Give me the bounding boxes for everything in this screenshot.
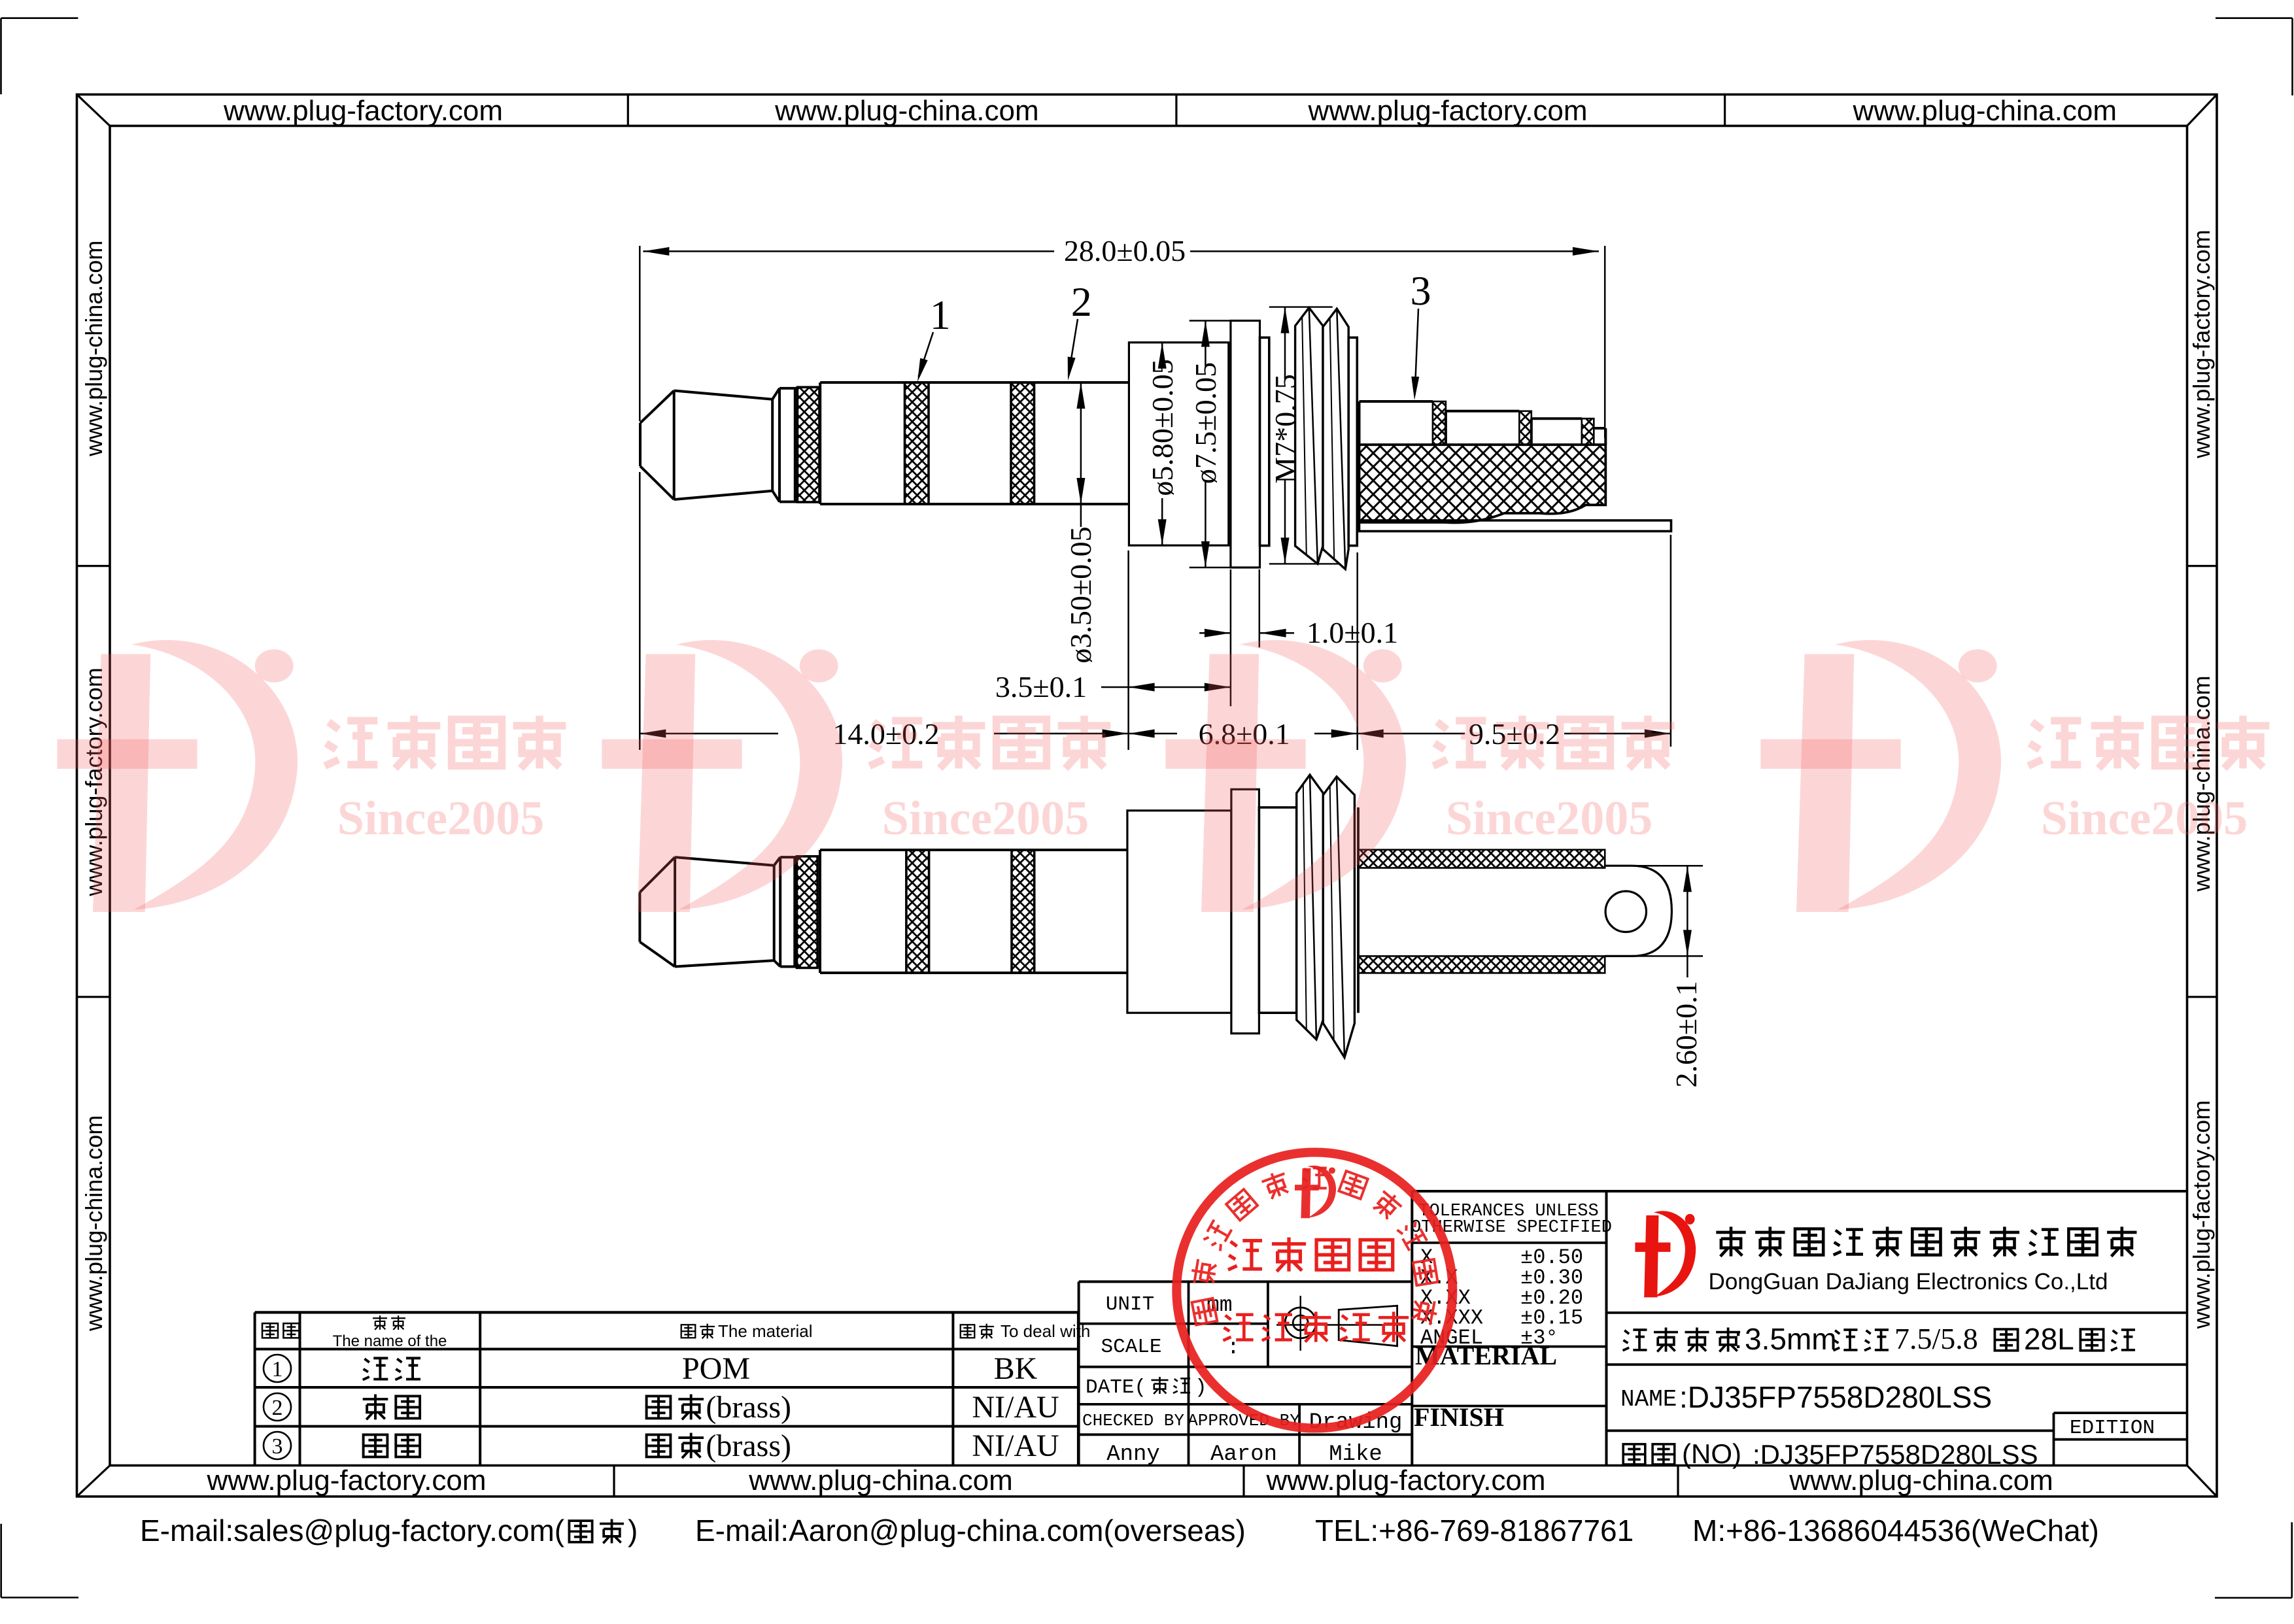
- svg-text:ø3.50±0.05: ø3.50±0.05: [1064, 526, 1097, 663]
- svg-text:www.plug-factory.com: www.plug-factory.com: [223, 95, 503, 127]
- svg-text:UNIT: UNIT: [1106, 1293, 1154, 1316]
- svg-text:1: 1: [930, 292, 951, 338]
- svg-text:3: 3: [272, 1434, 283, 1459]
- svg-text:www.plug-factory.com: www.plug-factory.com: [2188, 229, 2215, 458]
- svg-text:3.5±0.1: 3.5±0.1: [995, 670, 1087, 703]
- svg-text:(NO): (NO): [1682, 1438, 1741, 1469]
- svg-text:2.60±0.1: 2.60±0.1: [1669, 981, 1703, 1087]
- svg-text:DATE(: DATE(: [1086, 1376, 1146, 1399]
- svg-text:M7*0.75: M7*0.75: [1269, 374, 1302, 483]
- svg-text:POM: POM: [682, 1351, 750, 1386]
- svg-text:www.plug-china.com: www.plug-china.com: [774, 95, 1039, 127]
- svg-text:www.plug-china.com: www.plug-china.com: [748, 1464, 1013, 1497]
- svg-text:NI/AU: NI/AU: [972, 1390, 1059, 1425]
- svg-text:DongGuan DaJiang Electronics C: DongGuan DaJiang Electronics Co.,Ltd: [1709, 1269, 2108, 1294]
- svg-text:NI/AU: NI/AU: [972, 1429, 1059, 1463]
- svg-text:28.0±0.05: 28.0±0.05: [1064, 234, 1186, 267]
- svg-text:(brass): (brass): [706, 1429, 791, 1463]
- svg-text:ø5.80±0.05: ø5.80±0.05: [1146, 359, 1179, 496]
- svg-text:14.0±0.2: 14.0±0.2: [832, 717, 939, 751]
- svg-text:www.plug-factory.com: www.plug-factory.com: [2188, 1100, 2215, 1329]
- svg-text:www.plug-china.com: www.plug-china.com: [80, 241, 107, 457]
- svg-text::DJ35FP7558D280LSS: :DJ35FP7558D280LSS: [1679, 1380, 1992, 1414]
- svg-text:www.plug-china.com: www.plug-china.com: [1853, 95, 2117, 127]
- svg-text:NAME: NAME: [1620, 1386, 1677, 1413]
- svg-text:): ): [628, 1514, 638, 1548]
- svg-text:7.5/5.8: 7.5/5.8: [1894, 1322, 1978, 1355]
- svg-text:CHECKED BY: CHECKED BY: [1082, 1411, 1184, 1430]
- svg-text:Anny: Anny: [1106, 1442, 1160, 1467]
- svg-text:EDITION: EDITION: [2070, 1417, 2155, 1440]
- svg-text:E-mail:Aaron@plug-china.com(ov: E-mail:Aaron@plug-china.com(overseas): [695, 1514, 1246, 1548]
- svg-text:To deal with: To deal with: [1001, 1321, 1090, 1341]
- svg-text:BK: BK: [994, 1351, 1038, 1386]
- svg-text:The material: The material: [718, 1321, 813, 1341]
- svg-text:FINISH: FINISH: [1414, 1402, 1504, 1432]
- svg-text:28L: 28L: [2024, 1322, 2074, 1356]
- svg-text:2: 2: [1071, 279, 1092, 325]
- svg-text:SCALE: SCALE: [1101, 1336, 1161, 1359]
- svg-text:Since2005: Since2005: [337, 792, 545, 845]
- svg-text:TEL:+86-769-81867761: TEL:+86-769-81867761: [1315, 1514, 1634, 1548]
- svg-text:Aaron: Aaron: [1210, 1442, 1277, 1467]
- svg-text:www.plug-factory.com: www.plug-factory.com: [1265, 1464, 1545, 1497]
- svg-text:ø7.5±0.05: ø7.5±0.05: [1189, 362, 1222, 484]
- svg-text:E-mail:sales@plug-factory.com(: E-mail:sales@plug-factory.com(: [140, 1514, 565, 1548]
- svg-text:3: 3: [1411, 267, 1431, 314]
- svg-text::: :: [1734, 1323, 1742, 1355]
- svg-text:Since2005: Since2005: [1446, 792, 1653, 845]
- svg-text:www.plug-factory.com: www.plug-factory.com: [206, 1464, 486, 1497]
- svg-text:M:+86-13686044536(WeChat): M:+86-13686044536(WeChat): [1692, 1514, 2099, 1548]
- svg-text:Since2005: Since2005: [2041, 792, 2248, 845]
- svg-text:www.plug-factory.com: www.plug-factory.com: [1307, 95, 1587, 127]
- svg-text:Mike: Mike: [1329, 1442, 1382, 1467]
- svg-text:(brass): (brass): [706, 1390, 791, 1425]
- svg-text:The name of the: The name of the: [333, 1332, 447, 1350]
- svg-text:2: 2: [272, 1396, 283, 1420]
- svg-text:www.plug-china.com: www.plug-china.com: [2188, 675, 2215, 892]
- svg-text:3.5mm: 3.5mm: [1745, 1322, 1837, 1356]
- svg-text:1.0±0.1: 1.0±0.1: [1307, 616, 1398, 649]
- svg-text:1: 1: [272, 1357, 283, 1381]
- svg-text::DJ35FP7558D280LSS: :DJ35FP7558D280LSS: [1753, 1439, 2038, 1470]
- svg-text:www.plug-china.com: www.plug-china.com: [80, 1115, 107, 1332]
- svg-text:Since2005: Since2005: [882, 792, 1089, 845]
